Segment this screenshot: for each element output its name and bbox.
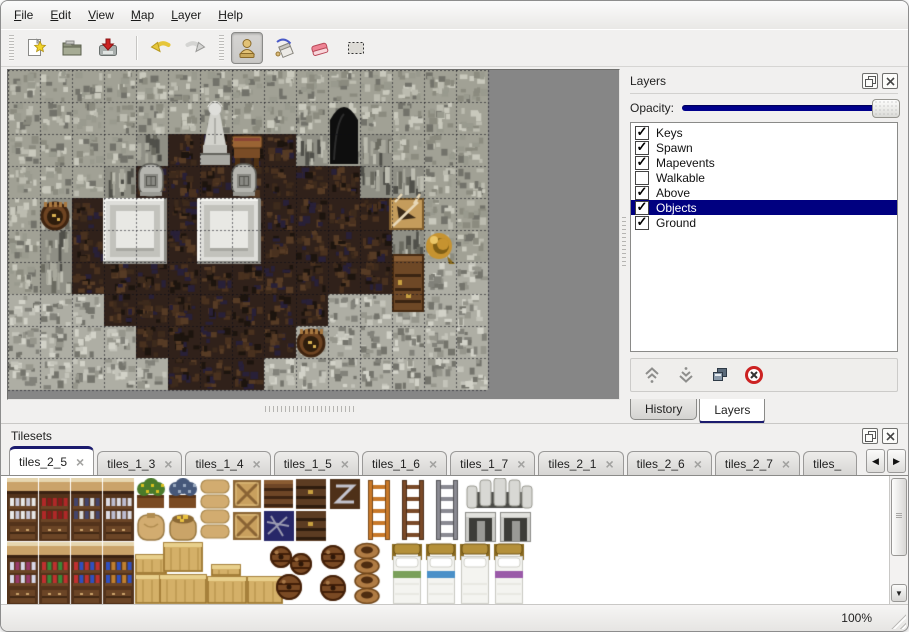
menu-item-file[interactable]: File (9, 5, 38, 25)
fill-tool-button[interactable] (269, 33, 299, 63)
delete-layer-button[interactable] (743, 364, 765, 386)
toolbar-separator (136, 36, 138, 60)
menu-mnemonic: E (50, 8, 58, 22)
tab-close-icon[interactable]: × (782, 458, 790, 470)
float-panel-button[interactable] (862, 73, 878, 89)
layer-label: Objects (656, 201, 697, 215)
status-bar: 100% (1, 604, 908, 631)
close-icon (886, 77, 895, 86)
redo-icon (184, 36, 208, 60)
tab-close-icon[interactable]: × (253, 458, 261, 470)
tab-close-icon[interactable]: × (76, 456, 84, 468)
tileset-tab-tiles_1_4[interactable]: tiles_1_4× (185, 451, 270, 475)
tileset-tab-tiles_1_5[interactable]: tiles_1_5× (274, 451, 359, 475)
tileset-tab-tiles_1_3[interactable]: tiles_1_3× (97, 451, 182, 475)
tab-close-icon[interactable]: × (164, 458, 172, 470)
new-file-icon (24, 36, 48, 60)
layer-label: Mapevents (656, 156, 715, 170)
menu-item-layer[interactable]: Layer (166, 5, 206, 25)
layer-label: Walkable (656, 171, 705, 185)
menu-item-map[interactable]: Map (126, 5, 159, 25)
tileset-tab-tiles_1_7[interactable]: tiles_1_7× (450, 451, 535, 475)
scrollbar-thumb[interactable] (891, 478, 907, 556)
opacity-slider-handle[interactable] (872, 99, 900, 118)
layer-visibility-checkbox[interactable]: ✓ (635, 141, 649, 155)
layer-row[interactable]: ✓Above (631, 185, 897, 200)
close-panel-button[interactable] (882, 73, 898, 89)
tileset-tab-tiles_2_6[interactable]: tiles_2_6× (627, 451, 712, 475)
tab-label: tiles_1_7 (460, 457, 508, 471)
opacity-label: Opacity: (630, 101, 674, 115)
opacity-control: Opacity: (630, 94, 898, 122)
tab-close-icon[interactable]: × (429, 458, 437, 470)
layer-visibility-checkbox[interactable]: ✓ (635, 156, 649, 170)
tab-label: tiles_ (813, 457, 841, 471)
menu-item-edit[interactable]: Edit (45, 5, 76, 25)
tileset-scrollbar[interactable]: ▼ (889, 476, 908, 604)
undo-icon (148, 36, 172, 60)
layer-label: Keys (656, 126, 683, 140)
tab-close-icon[interactable]: × (517, 458, 525, 470)
redo-button[interactable] (181, 33, 211, 63)
opacity-slider-track[interactable] (682, 105, 898, 111)
scrollbar-down-button[interactable]: ▼ (891, 584, 907, 602)
layer-visibility-checkbox[interactable]: ✓ (635, 216, 649, 230)
layers-panel-title: Layers (630, 74, 666, 88)
close-panel-button[interactable] (882, 428, 898, 444)
tab-label: tiles_1_6 (372, 457, 420, 471)
map-viewport (7, 69, 620, 400)
vertical-splitter[interactable] (620, 67, 628, 423)
layers-panel: Layers Opacity: ✓Keys✓Spawn✓MapeventsWal… (628, 67, 908, 423)
splitter-grip[interactable] (622, 217, 626, 269)
scroll-tabs-left-button[interactable]: ◀ (866, 449, 885, 473)
eraser-tool-icon (308, 36, 332, 60)
tileset-tab-tiles_2_1[interactable]: tiles_2_1× (538, 451, 623, 475)
layer-visibility-checkbox[interactable] (635, 171, 649, 185)
app-window: FileEditViewMapLayerHelp (0, 0, 909, 632)
tab-label: tiles_2_6 (637, 457, 685, 471)
tileset-canvas[interactable] (7, 478, 535, 604)
panel-tab-layers[interactable]: Layers (699, 399, 765, 424)
menu-mnemonic: H (218, 8, 227, 22)
move-layer-up-button[interactable] (641, 364, 663, 386)
arrow-down-icon (676, 365, 696, 385)
stamp-tool-icon (235, 36, 259, 60)
splitter-grip[interactable] (265, 406, 357, 412)
zoom-level-label: 100% (841, 611, 872, 625)
delete-icon (744, 365, 764, 385)
eraser-tool-button[interactable] (305, 33, 335, 63)
duplicate-icon (710, 365, 730, 385)
tab-label: tiles_1_4 (195, 457, 243, 471)
layer-label: Above (656, 186, 690, 200)
tileset-tab-tiles_2_7[interactable]: tiles_2_7× (715, 451, 800, 475)
layer-row[interactable]: ✓Spawn (631, 140, 897, 155)
tileset-tabbar: tiles_2_5×tiles_1_3×tiles_1_4×tiles_1_5×… (1, 446, 908, 476)
tileset-tab-tiles[interactable]: tiles_ (803, 451, 857, 475)
tab-label: tiles_2_7 (725, 457, 773, 471)
tilesets-panel-titlebar: Tilesets (1, 424, 908, 446)
open-folder-icon (60, 36, 84, 60)
layer-label: Spawn (656, 141, 693, 155)
layer-buttons-row (630, 358, 898, 392)
layer-visibility-checkbox[interactable]: ✓ (635, 126, 649, 140)
move-layer-down-button[interactable] (675, 364, 697, 386)
layer-label: Ground (656, 216, 696, 230)
tilesets-panel-title: Tilesets (11, 429, 52, 443)
layer-list: ✓Keys✓Spawn✓MapeventsWalkable✓Above✓Obje… (630, 122, 898, 352)
fill-tool-icon (272, 36, 296, 60)
tab-label: tiles_1_3 (107, 457, 155, 471)
tab-label: tiles_1_5 (284, 457, 332, 471)
menu-bar: FileEditViewMapLayerHelp (1, 1, 908, 29)
new-file-button[interactable] (21, 33, 51, 63)
menu-mnemonic: L (171, 8, 178, 22)
float-icon (865, 76, 876, 87)
duplicate-layer-button[interactable] (709, 364, 731, 386)
open-file-button[interactable] (57, 33, 87, 63)
close-icon (886, 432, 895, 441)
tab-label: tiles_2_5 (19, 455, 67, 469)
tab-close-icon[interactable]: × (341, 458, 349, 470)
layer-row[interactable]: ✓Ground (631, 215, 897, 230)
map-column (1, 67, 620, 423)
horizontal-splitter[interactable] (1, 400, 620, 418)
float-panel-button[interactable] (862, 428, 878, 444)
resize-grip[interactable] (888, 611, 906, 629)
tab-label: tiles_2_1 (548, 457, 596, 471)
tab-close-icon[interactable]: × (605, 458, 613, 470)
tab-scroll-buttons: ◀ ▶ (866, 449, 906, 473)
menu-item-help[interactable]: Help (213, 5, 248, 25)
tab-close-icon[interactable]: × (694, 458, 702, 470)
save-icon (96, 36, 120, 60)
layer-row[interactable]: Walkable (631, 170, 897, 185)
main-area: Layers Opacity: ✓Keys✓Spawn✓MapeventsWal… (1, 67, 908, 423)
layers-panel-titlebar: Layers (630, 71, 898, 94)
undo-button[interactable] (145, 33, 175, 63)
layer-visibility-checkbox[interactable]: ✓ (635, 201, 649, 215)
arrow-up-icon (642, 365, 662, 385)
layer-row[interactable]: ✓Keys (631, 125, 897, 140)
layer-row[interactable]: ✓Mapevents (631, 155, 897, 170)
tilesets-panel: Tilesets tiles_2_5×tiles_1_3×tiles_1_4×t… (1, 423, 908, 604)
toolbar-drag-handle[interactable] (219, 35, 224, 61)
map-canvas[interactable] (8, 70, 617, 397)
select-tool-icon (344, 36, 368, 60)
scroll-tabs-right-button[interactable]: ▶ (887, 449, 906, 473)
panel-tab-history[interactable]: History (630, 399, 697, 420)
save-button[interactable] (93, 33, 123, 63)
tileset-tab-tiles_2_5[interactable]: tiles_2_5× (9, 446, 94, 475)
menu-mnemonic: F (14, 8, 21, 22)
stamp-tool-button[interactable] (231, 32, 263, 64)
menu-mnemonic: V (88, 8, 96, 22)
layer-visibility-checkbox[interactable]: ✓ (635, 186, 649, 200)
float-icon (865, 431, 876, 442)
layer-row[interactable]: ✓Objects (631, 200, 897, 215)
menu-item-view[interactable]: View (83, 5, 119, 25)
panel-bottom-tabs: HistoryLayers (630, 399, 898, 423)
select-tool-button[interactable] (341, 33, 371, 63)
tileset-content: ▼ (1, 476, 908, 604)
toolbar (1, 29, 908, 67)
menu-mnemonic: M (131, 8, 141, 22)
tileset-tab-tiles_1_6[interactable]: tiles_1_6× (362, 451, 447, 475)
toolbar-drag-handle[interactable] (9, 35, 14, 61)
